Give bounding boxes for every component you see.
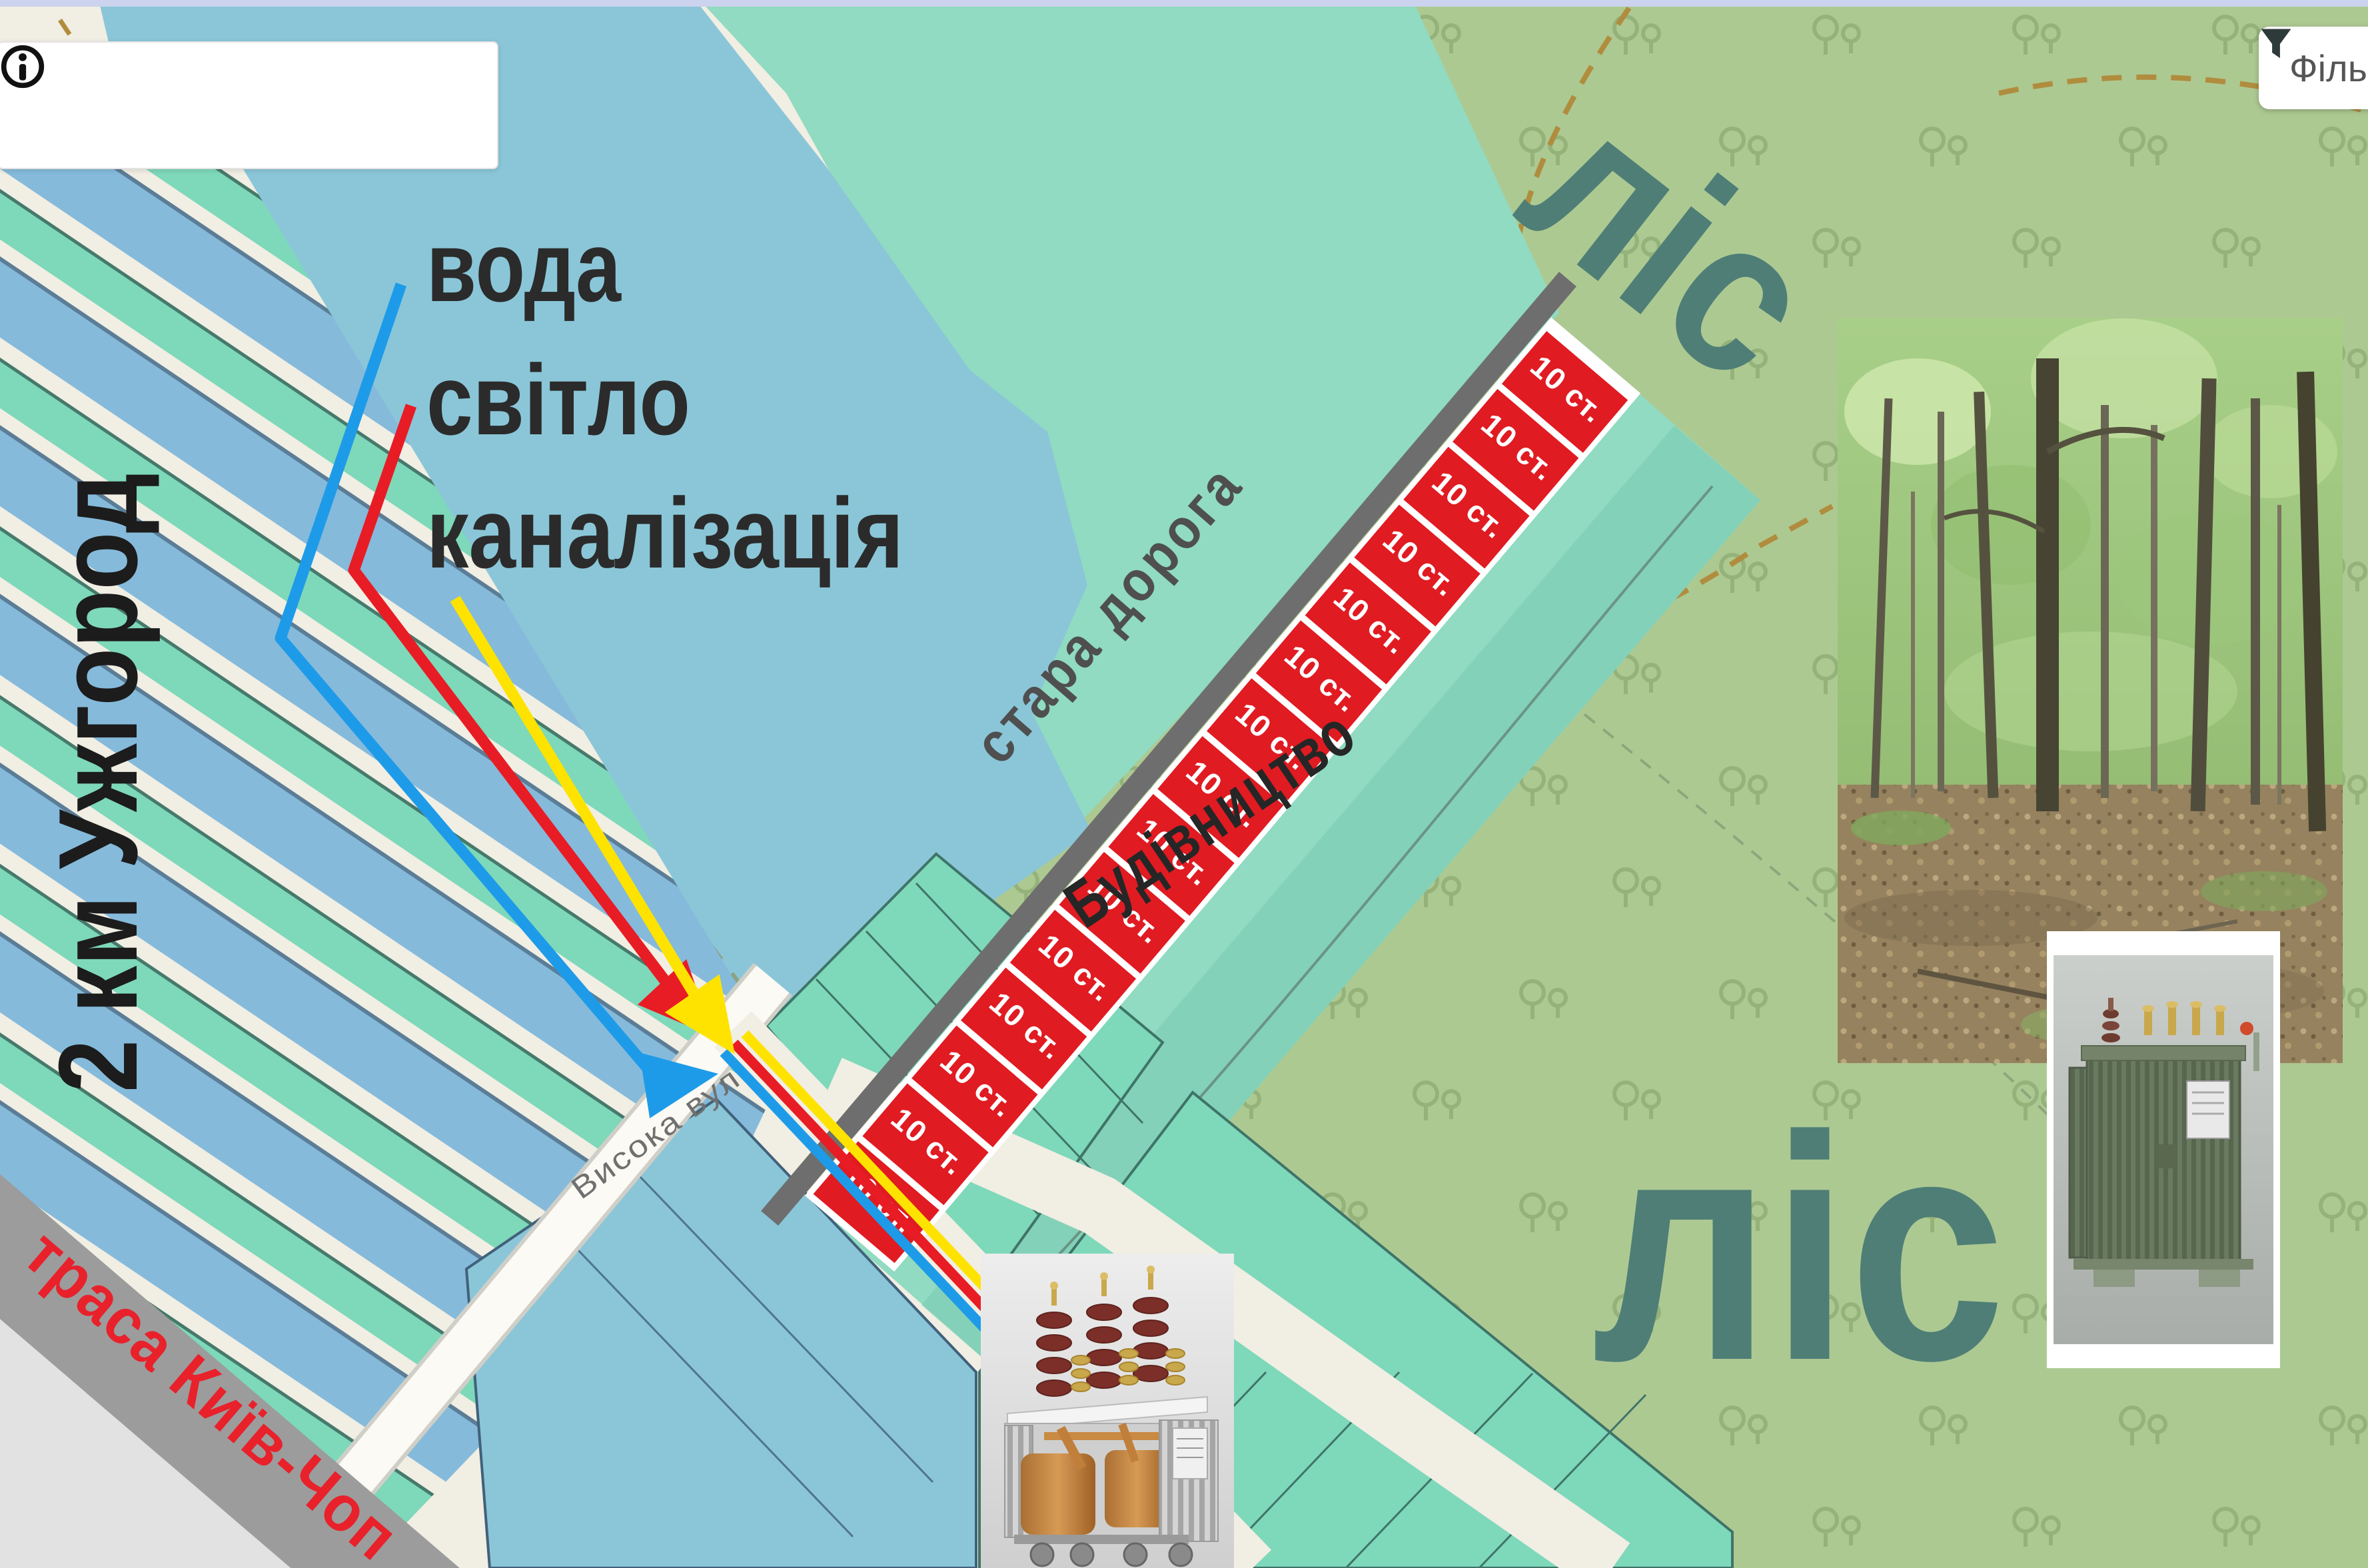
search-input[interactable] <box>0 43 518 168</box>
transformer-cutaway-photo <box>981 1254 1234 1568</box>
filter-button-label: Філь <box>2289 47 2367 90</box>
label-electricity: світло <box>426 344 690 456</box>
map-canvas[interactable]: 10 ст.10 ст.10 ст.10 ст.10 ст.10 ст.10 с… <box>0 0 2368 1568</box>
label-forest-lower: ліс <box>1592 1069 2006 1427</box>
label-sewage: каналізація <box>426 477 903 589</box>
info-button[interactable] <box>536 77 544 133</box>
funnel-icon <box>2259 27 2293 61</box>
info-circle-icon <box>0 43 47 91</box>
search-box <box>0 41 498 169</box>
browser-top-bar <box>0 0 2368 7</box>
label-water: вода <box>426 210 622 322</box>
label-distance-uzhhorod: 2 км Ужгород <box>35 473 161 1092</box>
transformer-photo <box>2047 931 2280 1368</box>
screen: 10 ст.10 ст.10 ст.10 ст.10 ст.10 ст.10 с… <box>0 0 2368 1568</box>
filter-button[interactable]: Філь <box>2259 27 2368 109</box>
